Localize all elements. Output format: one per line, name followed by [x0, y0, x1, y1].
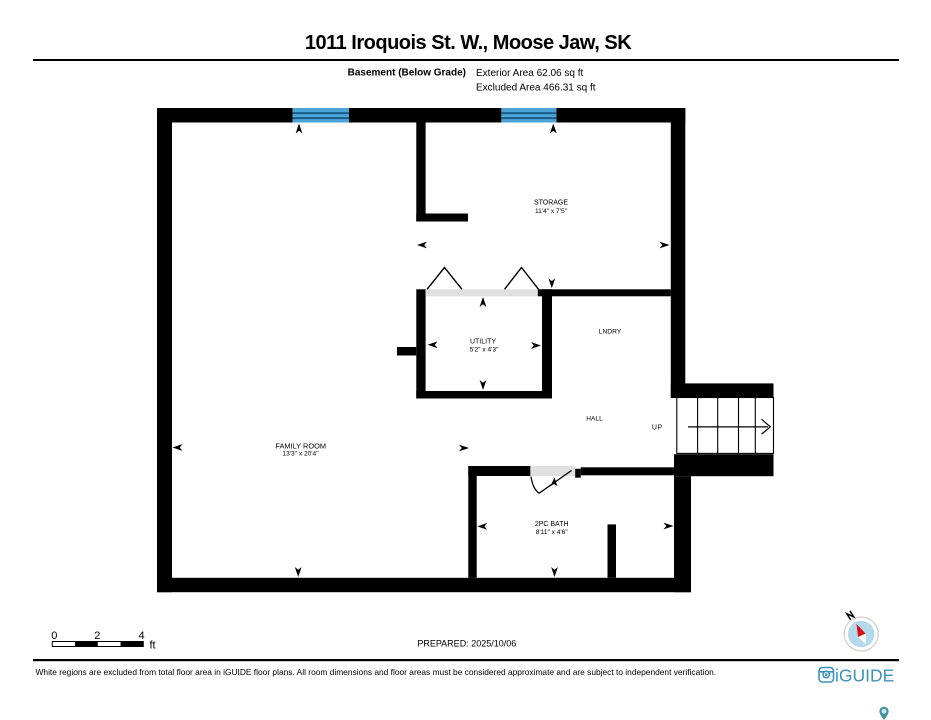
svg-text:ft: ft [150, 640, 156, 652]
svg-text:2PC BATH: 2PC BATH [535, 521, 569, 528]
svg-text:11'4" x 7'5": 11'4" x 7'5" [535, 208, 568, 215]
svg-text:LNDRY: LNDRY [599, 329, 622, 336]
svg-text:HALL: HALL [586, 416, 603, 423]
svg-text:Exterior Area 62.06 sq ft: Exterior Area 62.06 sq ft [476, 68, 584, 79]
svg-text:5'2" x 4'3": 5'2" x 4'3" [470, 346, 499, 353]
svg-text:STORAGE: STORAGE [534, 200, 568, 207]
svg-text:1011 Iroquois St. W., Moose Ja: 1011 Iroquois St. W., Moose Jaw, SK [305, 32, 632, 54]
svg-text:2: 2 [94, 630, 100, 642]
svg-text:iGUIDE: iGUIDE [835, 666, 894, 686]
svg-text:Basement (Below Grade): Basement (Below Grade) [348, 68, 466, 79]
svg-text:0: 0 [51, 630, 57, 642]
svg-text:PREPARED: 2025/10/06: PREPARED: 2025/10/06 [417, 638, 516, 648]
svg-text:White regions are excluded fro: White regions are excluded from total fl… [36, 667, 717, 677]
svg-text:13'3" x 20'4": 13'3" x 20'4" [282, 451, 319, 458]
svg-text:4: 4 [138, 630, 144, 642]
svg-text:UTILITY: UTILITY [470, 338, 496, 345]
svg-text:Excluded Area 466.31 sq ft: Excluded Area 466.31 sq ft [476, 83, 596, 94]
svg-text:8'11" x 4'6": 8'11" x 4'6" [536, 529, 569, 536]
svg-text:UP: UP [652, 424, 663, 431]
svg-text:FAMILY ROOM: FAMILY ROOM [275, 441, 326, 450]
